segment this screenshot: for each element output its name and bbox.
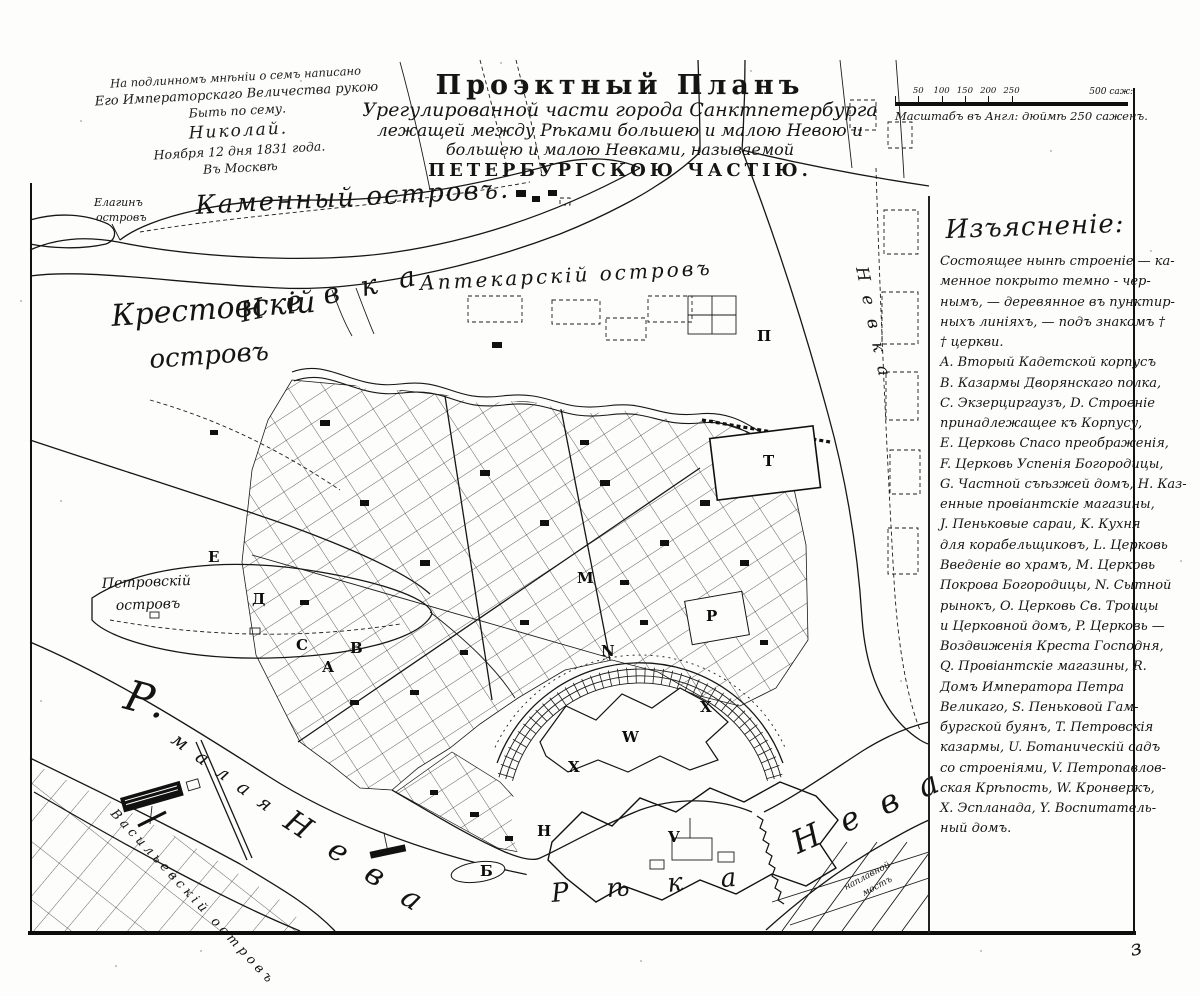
svg-text:островъ: островъ — [96, 211, 147, 224]
glacis-tick — [565, 687, 573, 701]
glacis-tick — [767, 774, 782, 778]
glacis-tick — [754, 740, 768, 748]
legend-line: рынокъ, O. Церковь Св. Троицы — [940, 597, 1130, 617]
map-marker-X: X — [700, 698, 712, 716]
svg-text:островъ: островъ — [116, 596, 181, 614]
map-marker-П: П — [757, 327, 771, 345]
legend-line: для корабельщиковъ, L. Церковь — [940, 536, 1130, 556]
legend-line: менное покрыто темно - чер- — [940, 272, 1130, 292]
paper-speck — [1180, 560, 1182, 562]
paper-speck — [1100, 400, 1102, 402]
legend-line: и Церковной домъ, P. Церковь — — [940, 617, 1130, 637]
legend-line: J. Пеньковые сараи, K. Кухня — [940, 515, 1130, 535]
legend-line: ская Крѣпость, W. Кронверкъ, — [940, 779, 1130, 799]
paper-speck — [20, 300, 22, 302]
legend-line: Домъ Императора Петра — [940, 678, 1130, 698]
glacis-tick — [513, 739, 527, 747]
legend-line: F. Церковь Успенія Богородицы, — [940, 455, 1130, 475]
label-malaya-r: Р. — [118, 670, 172, 728]
vasilievsky-grid — [30, 740, 310, 931]
map-marker-V: V — [667, 828, 680, 846]
legend-line: принадлежащее къ Корпусу, — [940, 414, 1130, 434]
map-marker-В: В — [350, 639, 363, 657]
sheet-border-left — [30, 183, 32, 933]
scale-tick-label: 250 — [1003, 86, 1019, 96]
paper-speck — [115, 965, 117, 967]
map-marker-С: С — [296, 636, 308, 654]
map-marker-Т: Т — [763, 452, 775, 470]
map-marker-Б: Б — [480, 862, 493, 880]
map-marker-М: М — [577, 569, 594, 587]
glacis-tick — [523, 724, 536, 734]
map-marker-Е: Е — [208, 548, 219, 566]
paper-speck — [60, 500, 62, 502]
legend-line: X. Эспланада, Y. Воспитатель- — [940, 799, 1130, 819]
scale-tick-label: 50 — [913, 86, 924, 96]
legend-line: Q. Провіантскіе магазины, R. — [940, 657, 1130, 677]
legend-line: C. Экзерциргаузъ, D. Строеніе — [940, 394, 1130, 414]
glacis-tick — [617, 669, 619, 685]
legend-header: Изъясненіе: — [940, 209, 1131, 246]
glacis-tick — [734, 711, 745, 722]
map-marker-W: W — [621, 728, 640, 746]
legend-line: Покрова Богородицы, N. Сытной — [940, 576, 1130, 596]
scale-caption: Масштабъ въ Англ: дюймѣ 250 саженъ. — [895, 109, 1128, 123]
label-elagin: Елагинъ — [93, 196, 143, 209]
glacis-tick — [498, 773, 513, 778]
sheet-border-bottom — [28, 931, 1136, 935]
glacis-tick — [749, 732, 762, 741]
legend-line: Состоящее нынѣ строеніе — ка- — [940, 252, 1130, 272]
paper-speck — [80, 120, 82, 122]
paper-speck — [640, 960, 642, 962]
paper-speck — [40, 700, 42, 702]
scale-tick — [918, 96, 919, 103]
botanical-garden — [688, 296, 736, 334]
scale-tick-label: 150 — [957, 86, 973, 96]
legend-panel: Изъясненіе: Состоящее нынѣ строеніе — ка… — [940, 212, 1130, 840]
scale-tick — [1012, 96, 1013, 103]
legend-line: ныхъ линіяхъ, — подъ знакомъ † — [940, 313, 1130, 333]
label-aptekarsky: Аптекарскій островъ — [417, 256, 713, 295]
legend-separator-line — [928, 196, 930, 933]
paper-speck — [300, 80, 302, 82]
legend-line: † церкви. — [940, 333, 1130, 353]
map-marker-N: N — [601, 642, 615, 660]
map-marker-Р: Р — [706, 607, 717, 625]
legend-line: бургской буянъ, T. Петровскія — [940, 718, 1130, 738]
scale-tick — [988, 96, 989, 103]
legend-line: казармы, U. Ботаническій садъ — [940, 738, 1130, 758]
legend-line: E. Церковь Спасо преображенія, — [940, 434, 1130, 454]
legend-line: Великаго, S. Пеньковой Гам- — [940, 698, 1130, 718]
legend-line: енные провіантскіе магазины, — [940, 495, 1130, 515]
paper-speck — [1150, 250, 1152, 252]
paper-speck — [900, 680, 902, 682]
map-marker-А: А — [322, 658, 335, 676]
title-part: ПЕТЕРБУРГСКОЮ ЧАСТІЮ. — [330, 159, 910, 182]
title-sub: лежащей между Рѣками большею и малою Нев… — [330, 122, 910, 141]
glacis-tick — [518, 731, 531, 740]
scale-tick-label: 100 — [933, 86, 949, 96]
map-marker-Н: Н — [537, 822, 551, 840]
legend-line: G. Частной съѣзжей домъ, H. Каз- — [940, 475, 1130, 495]
label-malaya-neva: Нева — [277, 803, 451, 933]
glacis-tick — [745, 725, 758, 735]
map-marker-X: X — [568, 758, 580, 776]
legend-line: нымъ, — деревянное въ пунктир- — [940, 293, 1130, 313]
legend-body: Состоящее нынѣ строеніе — ка-менное покр… — [940, 252, 1130, 840]
paper-speck — [500, 62, 502, 64]
svg-text:островъ: островъ — [148, 337, 269, 375]
scale-tick — [965, 96, 966, 103]
legend-line: B. Казармы Дворянскаго полка, — [940, 374, 1130, 394]
label-nevka-right: Невка — [851, 264, 897, 391]
scale-end-label: 500 саж: — [1089, 87, 1133, 97]
label-nevka-upper: Невка — [236, 255, 440, 329]
paper-speck — [1050, 150, 1052, 152]
legend-line: ный домъ. — [940, 819, 1130, 839]
legend-line: со строеніями, V. Петропавлов- — [940, 759, 1130, 779]
paper-speck — [200, 950, 202, 952]
label-petrovsky: Петровскій — [101, 573, 192, 592]
glacis-tick — [536, 710, 547, 721]
paper-speck — [750, 70, 752, 72]
title-sub: большею и малою Невками, называемой — [330, 141, 910, 159]
map-marker-Д: Д — [252, 590, 265, 608]
legend-line: Введеніе во храмъ, M. Церковь — [940, 556, 1130, 576]
scale-bar: 500 саж: Масштабъ въ Англ: дюймѣ 250 саж… — [895, 90, 1129, 132]
legend-line: Воздвиженія Креста Господня, — [940, 637, 1130, 657]
map-title-block: Проэктный Планъ Урегулированной части го… — [330, 72, 910, 182]
scale-tick — [942, 96, 943, 103]
title-sub: Урегулированной части города Санктпетерб… — [330, 100, 910, 121]
title-main: Проэктный Планъ — [330, 72, 910, 100]
legend-line: A. Вторый Кадетской корпусъ — [940, 353, 1130, 373]
glacis-tick — [557, 692, 566, 705]
scale-tick — [895, 96, 896, 103]
scale-tick-label: 200 — [980, 86, 996, 96]
paper-speck — [980, 950, 982, 952]
